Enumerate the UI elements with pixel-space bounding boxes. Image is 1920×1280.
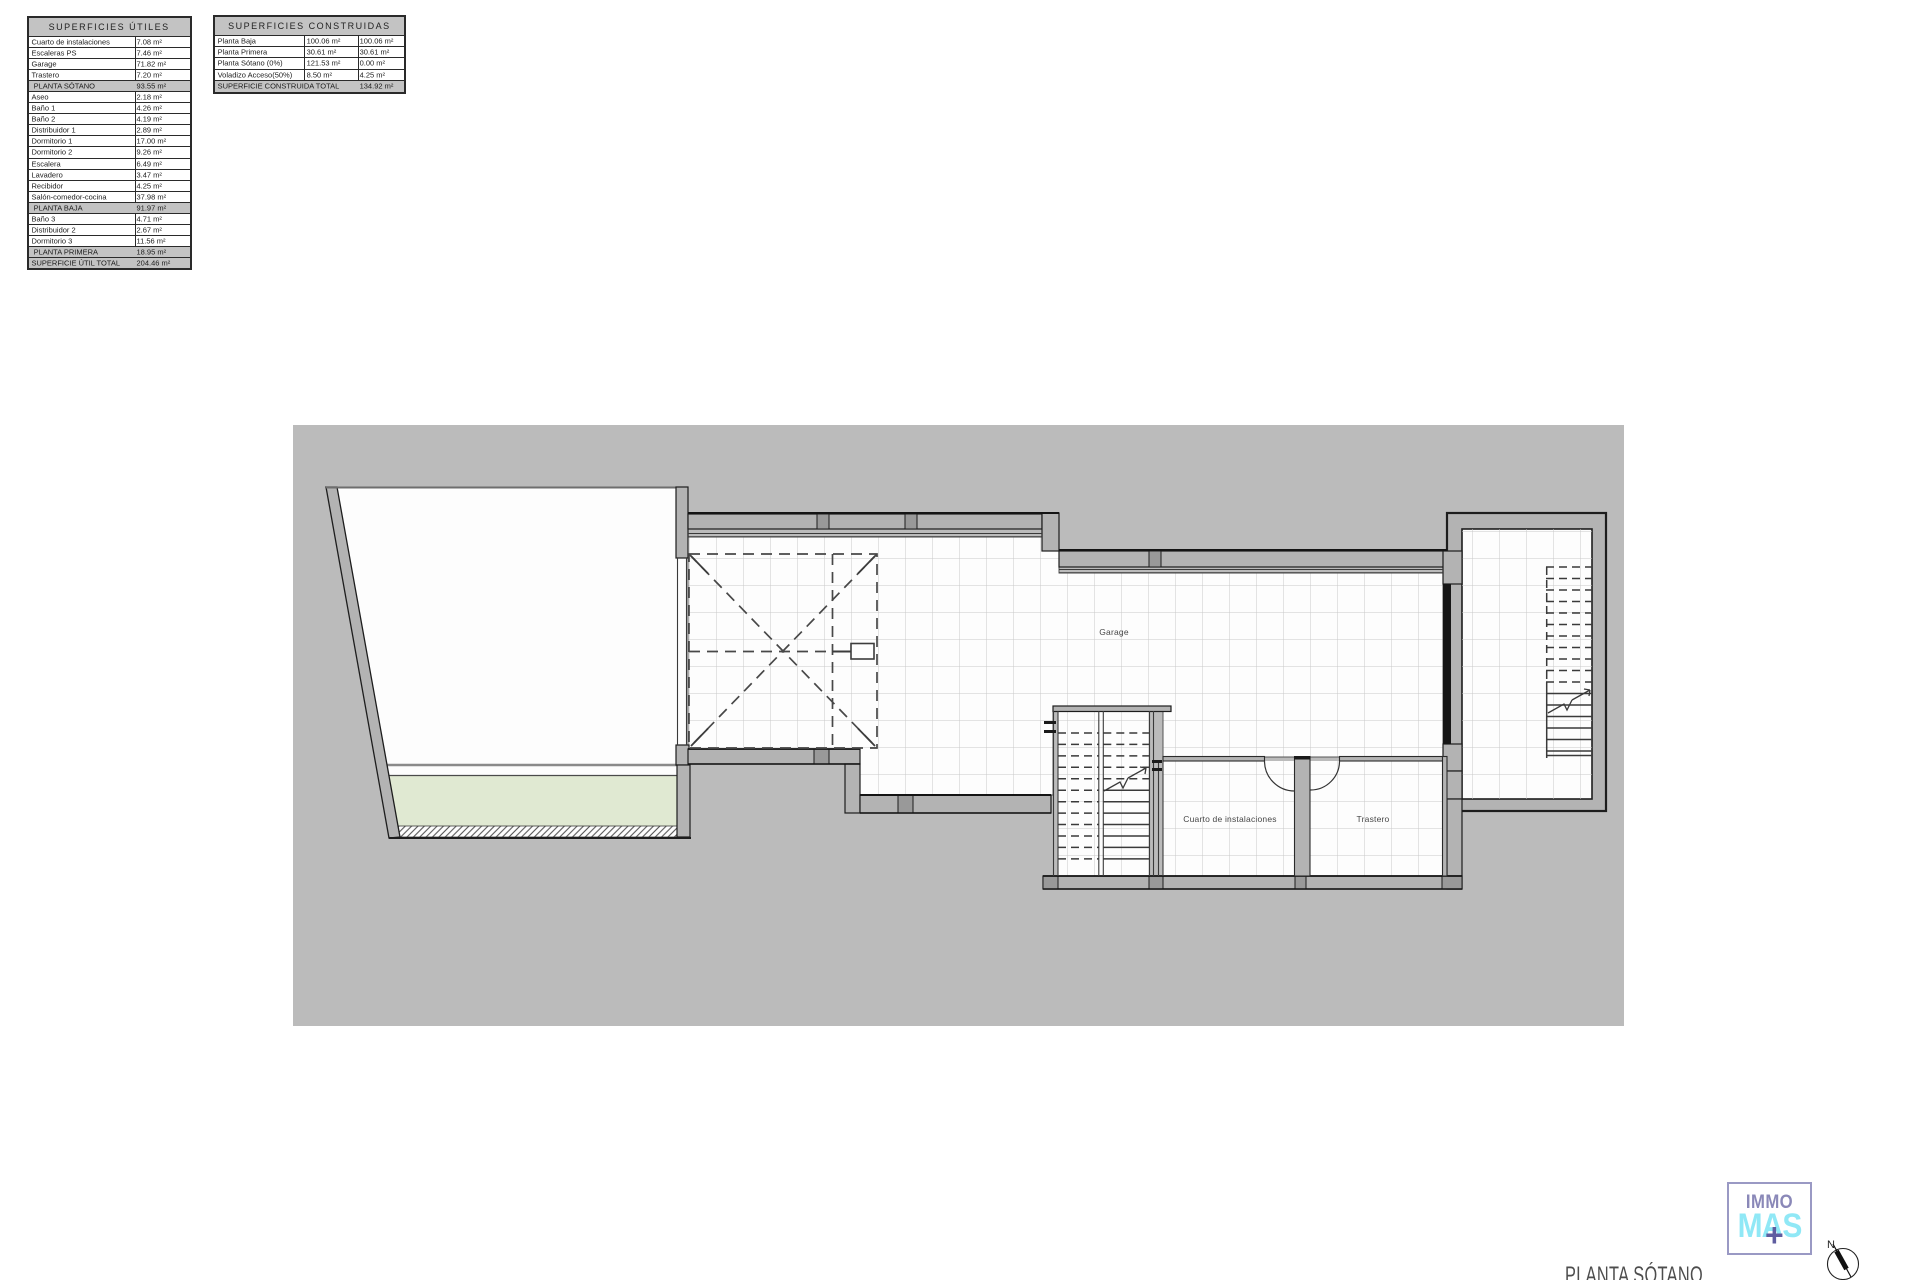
svg-text:Trastero: Trastero	[1357, 814, 1390, 824]
svg-text:N: N	[1827, 1239, 1835, 1251]
svg-text:Garage: Garage	[1099, 627, 1129, 637]
svg-text:Cuarto de instalaciones: Cuarto de instalaciones	[1183, 814, 1276, 824]
